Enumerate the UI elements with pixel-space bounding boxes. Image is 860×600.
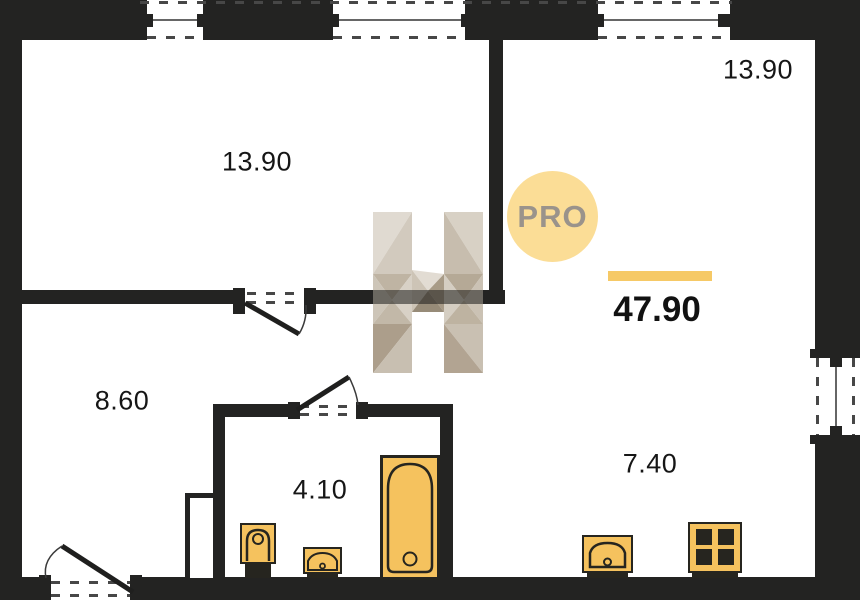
- room-door-right-jamb: [304, 288, 316, 314]
- wall-bottom: [137, 577, 860, 600]
- balcony-window-right-dashed-line: [852, 358, 855, 435]
- wall-top-segment-1: [0, 0, 147, 40]
- room-door-dashed-edge-top: [247, 292, 303, 295]
- entrance-door-dashed-edge-bottom: [51, 594, 130, 597]
- balcony-window-left-dashed-line: [816, 358, 819, 435]
- wall-left: [0, 0, 22, 600]
- bathroom-wall-top-left: [213, 404, 293, 417]
- entrance-door-right-jamb: [130, 575, 142, 600]
- area-label-top-left-room: 13.90: [222, 147, 292, 178]
- window-3-inner-dashed-line: [598, 36, 726, 39]
- window-2-inner-dashed-line: [333, 36, 465, 39]
- bathtub-fixture: [380, 455, 440, 580]
- window-2-glass-line: [333, 19, 465, 21]
- interior-wall-hall-left: [22, 290, 237, 304]
- bathroom-door-arc: [349, 377, 358, 405]
- room-door-left-jamb: [233, 288, 245, 314]
- room-door-leaf: [245, 303, 299, 334]
- bathroom-wall-right: [440, 404, 453, 578]
- wall-top-segment-2: [203, 0, 333, 40]
- room-door-dashed-edge-bottom: [247, 301, 303, 304]
- total-area-accent-bar: [608, 271, 712, 281]
- wall-top-segment-3: [465, 0, 598, 40]
- bathroom-door-dashed-edge-bottom: [300, 413, 356, 416]
- bathroom-door-dashed-edge-top: [300, 405, 356, 408]
- entrance-door-dashed-edge-top: [51, 581, 130, 584]
- pro-badge: PRO: [507, 171, 598, 262]
- window-1-left-cap: [141, 14, 153, 27]
- window-3-left-cap: [592, 14, 604, 27]
- toilet-fixture: [240, 523, 276, 578]
- bathroom-sink-fixture: [303, 547, 342, 578]
- area-label-hallway: 8.60: [95, 386, 150, 417]
- entrance-door-arc: [45, 546, 62, 578]
- window-1-right-cap: [197, 14, 209, 27]
- balcony-window-glass-line: [835, 360, 837, 435]
- area-label-bathroom: 4.10: [293, 475, 348, 506]
- window-outer-dashed-line: [140, 1, 732, 4]
- total-area-value: 47.90: [613, 290, 701, 330]
- window-1-inner-dashed-line: [147, 36, 203, 39]
- kitchen-sink-fixture: [582, 535, 633, 582]
- area-label-kitchen-living: 7.40: [623, 449, 678, 480]
- interior-wall-hall-right-a: [310, 290, 373, 304]
- entrance-door-left-jamb: [39, 575, 51, 600]
- balcony-window-bottom-bar: [810, 435, 860, 444]
- wall-bottom-left-stub: [0, 577, 42, 600]
- interior-wall-rooms-divider: [489, 38, 503, 304]
- duct-shaft-interior: [190, 498, 213, 578]
- window-3-right-cap: [718, 14, 730, 27]
- stove-fixture: [688, 522, 742, 578]
- balcony-window-bottom-cap: [830, 426, 842, 436]
- wall-top-segment-4: [730, 0, 860, 40]
- window-1-glass-line: [147, 19, 203, 21]
- window-2-left-cap: [327, 14, 339, 27]
- floor-plan: PRO 47.90 13.90 13.90 8.60 4.10 7.40: [0, 0, 860, 600]
- interior-wall-through-watermark: [373, 290, 483, 304]
- area-label-top-right-room: 13.90: [723, 55, 793, 86]
- bathroom-door-left-jamb: [288, 402, 300, 419]
- wall-right-upper: [815, 38, 860, 350]
- wall-right-lower: [815, 443, 860, 578]
- entrance-door-leaf: [62, 546, 133, 592]
- balcony-window-top-cap: [830, 357, 842, 367]
- bathroom-door-right-jamb: [356, 402, 368, 419]
- window-2-right-cap: [461, 14, 473, 27]
- pro-badge-label: PRO: [517, 199, 587, 235]
- window-3-glass-line: [598, 19, 726, 21]
